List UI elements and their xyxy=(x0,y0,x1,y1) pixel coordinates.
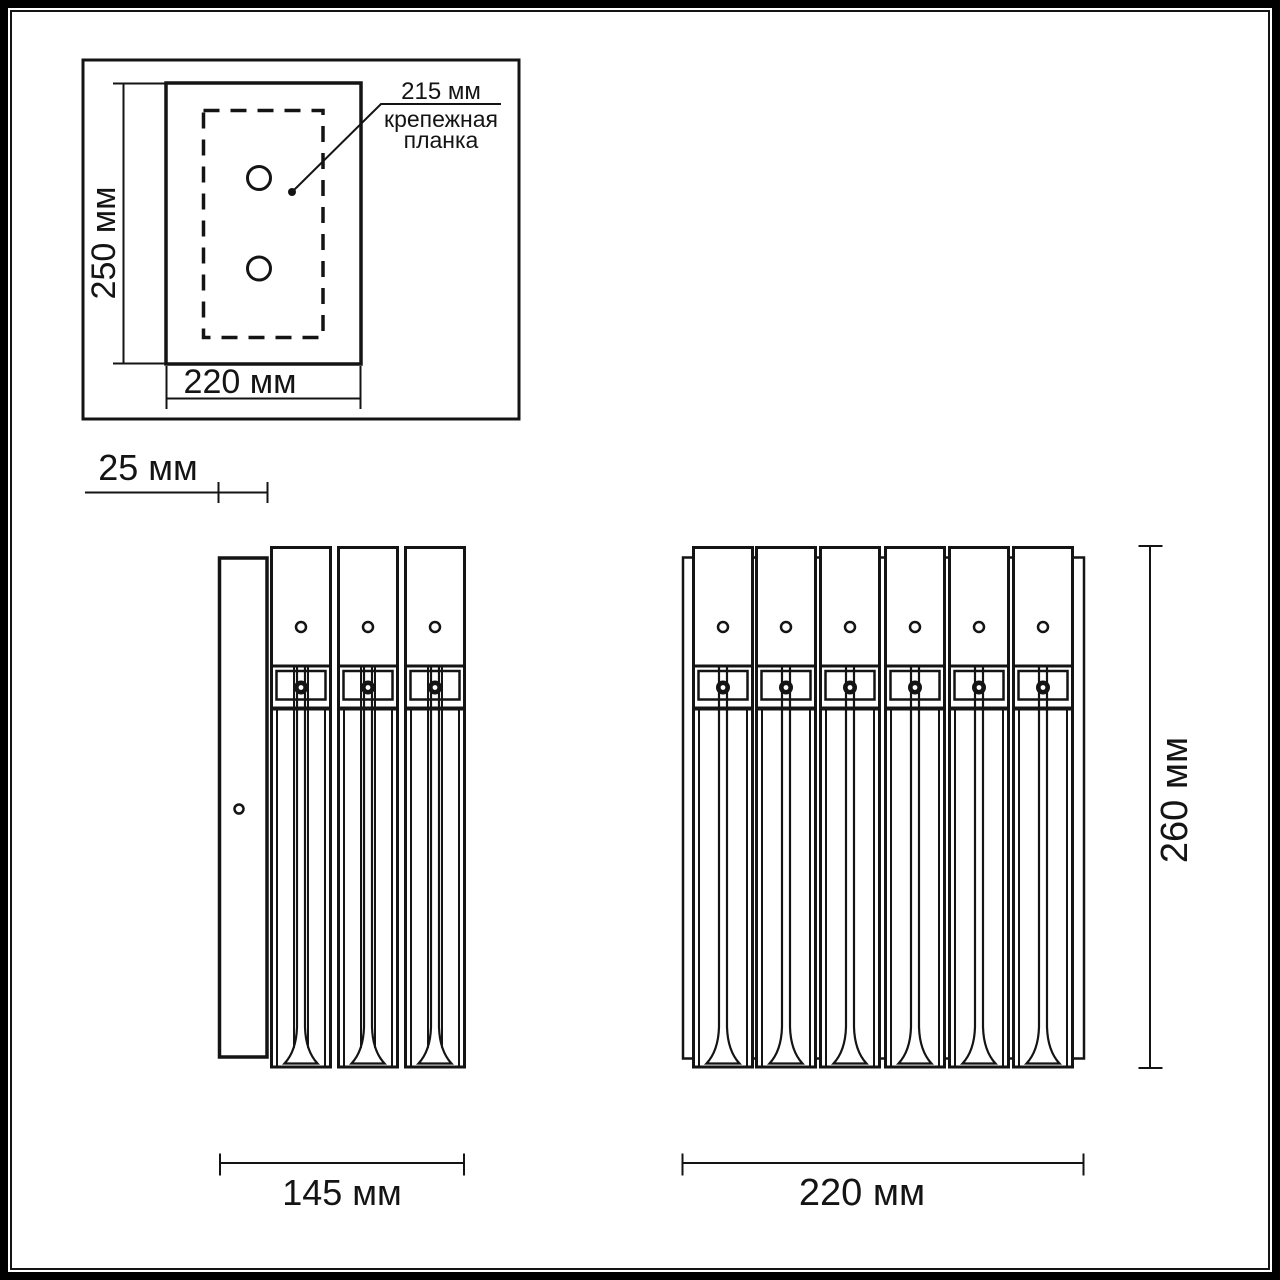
shade-panel xyxy=(950,548,1009,1068)
leader-dot xyxy=(288,188,296,196)
front-height-dim-label: 260 мм xyxy=(1154,737,1196,863)
front-view: 260 мм 220 мм xyxy=(683,546,1197,1214)
wall-plate-hole xyxy=(235,805,244,814)
mounting-hole xyxy=(248,257,271,280)
shade-panel xyxy=(886,548,945,1068)
bracket-name-line2: планка xyxy=(404,127,479,153)
top-width-dim-label: 220 мм xyxy=(184,363,297,401)
bracket-dim-label: 215 мм xyxy=(401,78,481,105)
shade-panel xyxy=(694,548,753,1068)
side-width-dim-label: 145 мм xyxy=(282,1172,402,1213)
top-height-dim-label: 250 мм xyxy=(85,187,123,300)
front-width-dim-label: 220 мм xyxy=(799,1172,925,1214)
side-depth-dim-label: 25 мм xyxy=(98,447,198,488)
shade-panel xyxy=(1014,548,1073,1068)
shade-panel xyxy=(757,548,816,1068)
technical-drawing-sheet: 215 мм крепежная планка 250 мм 220 мм xyxy=(0,0,1280,1280)
drawing-svg: 215 мм крепежная планка 250 мм 220 мм xyxy=(0,0,1280,1280)
shade-panel xyxy=(272,548,331,1068)
shade-panel xyxy=(339,548,398,1068)
shade-panel xyxy=(821,548,880,1068)
top-view: 215 мм крепежная планка 250 мм 220 мм xyxy=(83,60,519,419)
mounting-hole xyxy=(248,167,271,190)
backplate-outline xyxy=(166,83,361,364)
side-view: 25 мм 145 мм xyxy=(85,447,465,1213)
shade-panel xyxy=(406,548,465,1068)
